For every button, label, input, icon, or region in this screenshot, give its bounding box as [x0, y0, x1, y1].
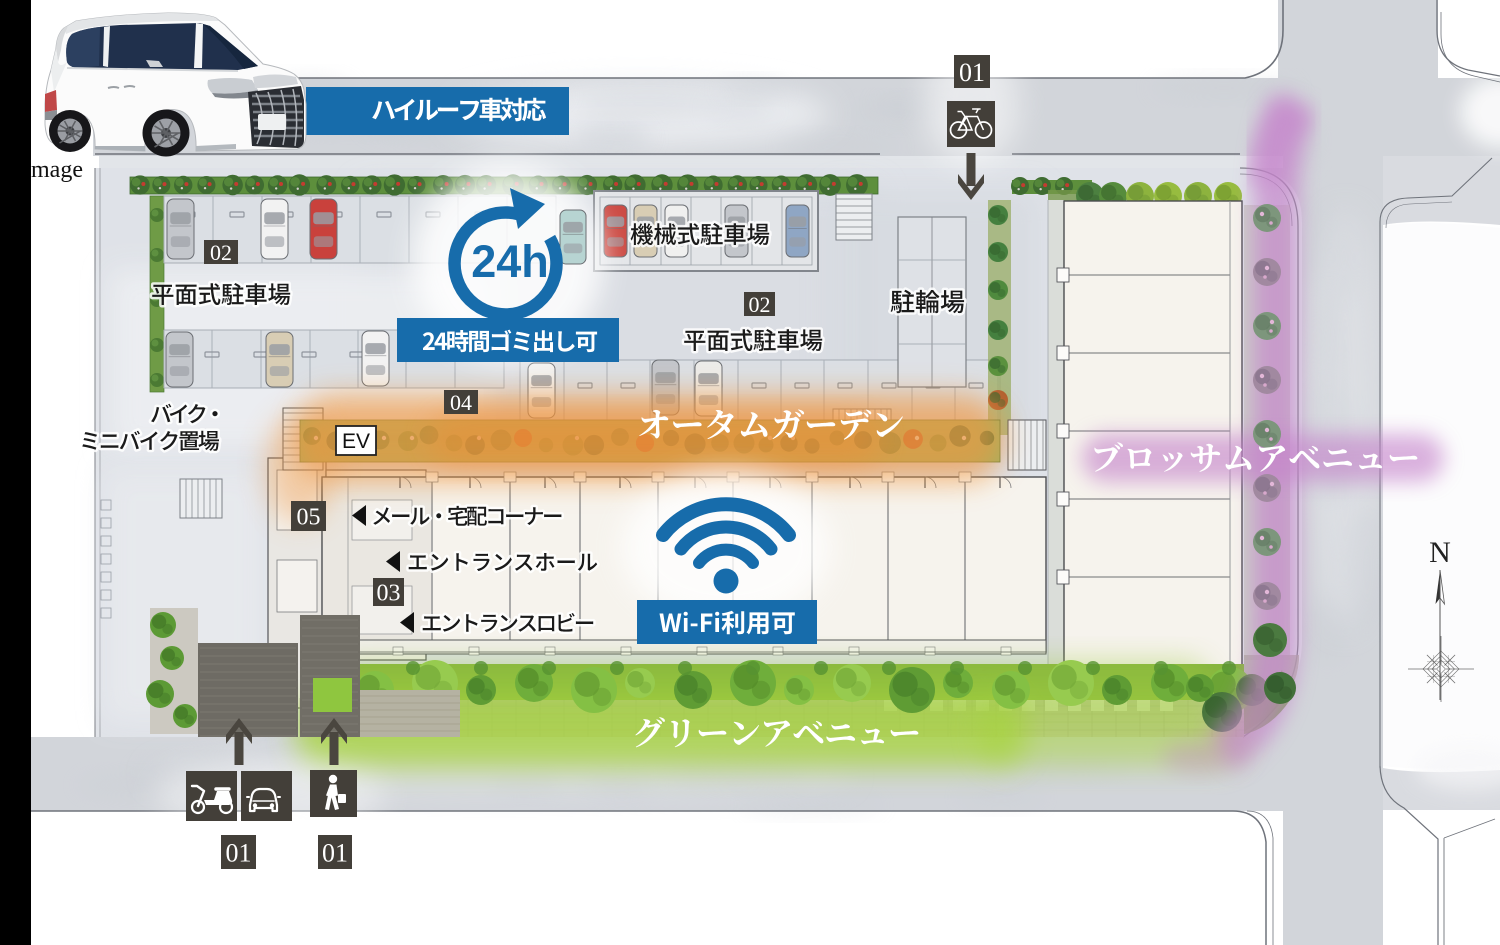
svg-text:03: 03	[377, 581, 401, 607]
svg-text:24h: 24h	[471, 236, 549, 287]
svg-text:02: 02	[210, 240, 232, 265]
svg-text:01: 01	[322, 838, 348, 867]
svg-text:02: 02	[749, 292, 771, 317]
svg-text:05: 05	[297, 505, 321, 531]
svg-text:EV: EV	[342, 430, 370, 453]
svg-text:mage: mage	[31, 157, 83, 183]
svg-text:01: 01	[226, 838, 252, 867]
svg-text:04: 04	[450, 390, 472, 415]
svg-text:N: N	[1429, 536, 1451, 569]
svg-text:01: 01	[959, 58, 985, 87]
